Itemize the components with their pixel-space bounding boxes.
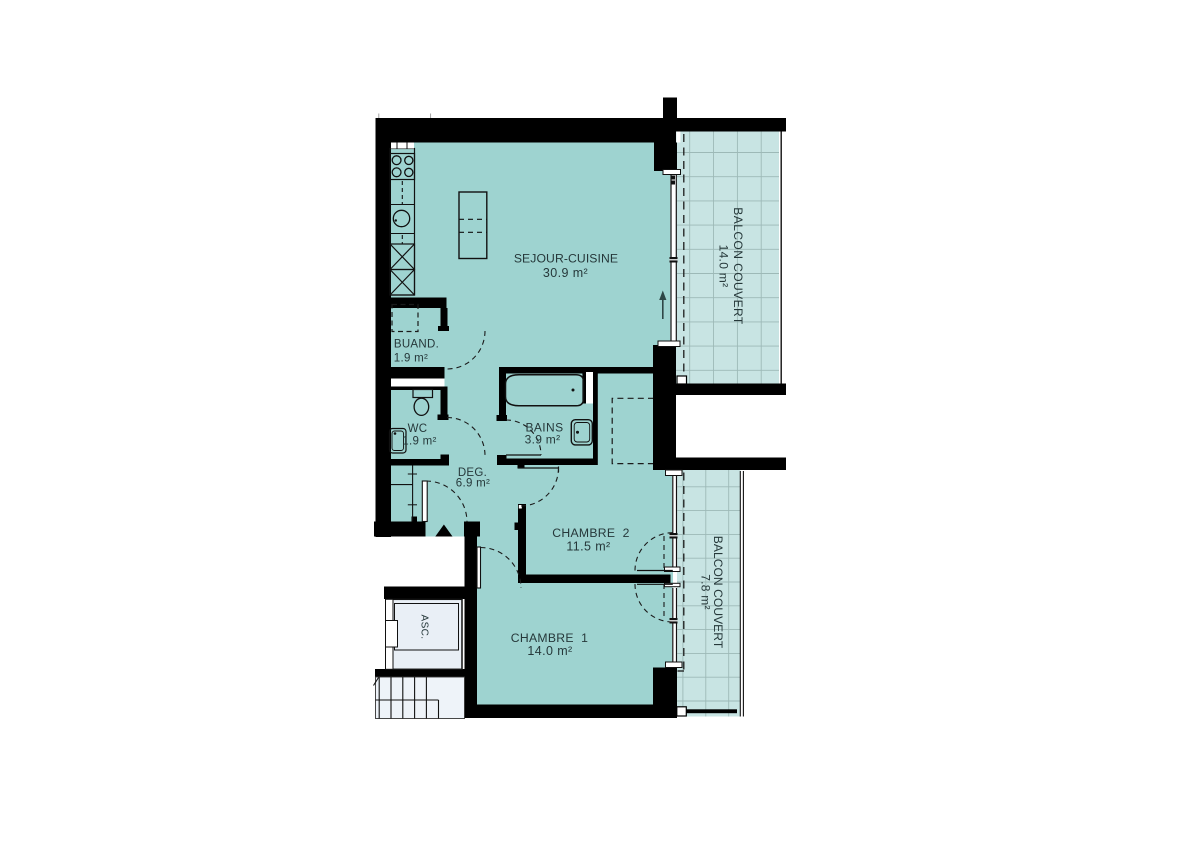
svg-text:30.9 m²: 30.9 m² (543, 266, 588, 280)
svg-text:11.5 m²: 11.5 m² (566, 540, 610, 554)
svg-text:ASC.: ASC. (419, 615, 430, 640)
svg-text:1.9 m²: 1.9 m² (394, 353, 428, 365)
svg-text:BUAND.: BUAND. (394, 339, 439, 351)
svg-text:7.8 m²: 7.8 m² (699, 574, 713, 610)
svg-text:14.0 m²: 14.0 m² (527, 644, 572, 658)
svg-text:3.9 m²: 3.9 m² (525, 433, 561, 447)
svg-text:14.0 m²: 14.0 m² (717, 245, 731, 288)
svg-text:WC: WC (408, 423, 428, 435)
svg-text:BALCON COUVERT: BALCON COUVERT (731, 207, 745, 325)
svg-text:6.9 m²: 6.9 m² (456, 478, 490, 490)
svg-text:CHAMBRE 1: CHAMBRE 1 (511, 631, 589, 645)
svg-text:CHAMBRE 2: CHAMBRE 2 (552, 526, 630, 540)
svg-text:1.9 m²: 1.9 m² (402, 436, 436, 448)
svg-text:SEJOUR-CUISINE: SEJOUR-CUISINE (514, 252, 618, 266)
